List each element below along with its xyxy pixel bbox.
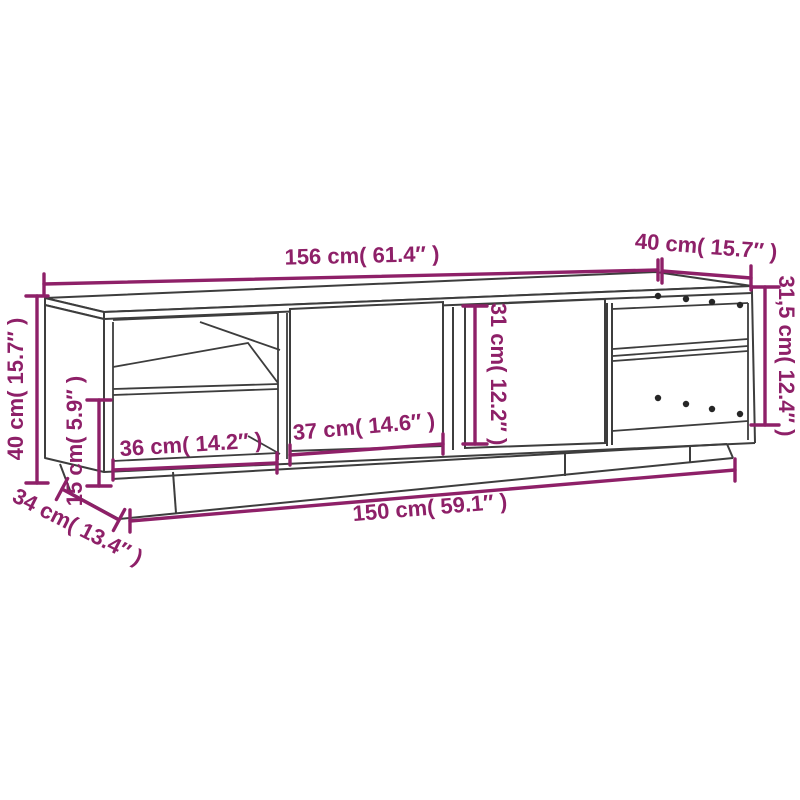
right-compartment bbox=[612, 303, 748, 440]
pin-hole bbox=[737, 411, 743, 417]
dimension-diagram-page: 156 cm( 61.4″ ) 40 cm( 15.7″ ) 31,5 cm( … bbox=[0, 0, 800, 800]
dim-label-height-left: 40 cm( 15.7″ ) bbox=[3, 318, 28, 461]
plinth-foot-seam-left bbox=[173, 472, 176, 513]
dim-height-right: 31,5 cm( 12.4″ ) bbox=[751, 276, 799, 437]
pin-hole bbox=[683, 401, 689, 407]
dim-label-door-height: 31 cm( 12.2″ ) bbox=[486, 303, 511, 446]
dim-label-depth-top: 40 cm( 15.7″ ) bbox=[634, 228, 778, 264]
dim-height-left: 40 cm( 15.7″ ) bbox=[3, 296, 48, 483]
dim-tick bbox=[113, 510, 124, 531]
cabinet-drawing bbox=[45, 272, 755, 519]
pin-hole bbox=[709, 406, 715, 412]
left-shelf-front-edge bbox=[113, 384, 278, 389]
left-compartment-back-corner bbox=[200, 322, 280, 350]
dim-label-height-right: 31,5 cm( 12.4″ ) bbox=[774, 276, 799, 437]
right-door bbox=[465, 299, 605, 448]
right-compartment-top-edge bbox=[612, 303, 748, 309]
pin-hole bbox=[737, 302, 743, 308]
plinth-right-corner bbox=[727, 444, 733, 458]
right-shelf-thickness bbox=[613, 351, 748, 361]
dim-label-plinth-height: 15 cm( 5.9″ ) bbox=[62, 376, 87, 506]
dim-label-shelf-width: 36 cm( 14.2″ ) bbox=[119, 427, 263, 461]
cabinet-right-front-edge bbox=[752, 293, 755, 443]
left-shelf-top-surface bbox=[113, 343, 278, 383]
pin-hole bbox=[655, 395, 661, 401]
pin-hole bbox=[709, 299, 715, 305]
dim-line-shelf-width bbox=[113, 463, 277, 470]
left-shelf-thickness bbox=[113, 389, 278, 395]
dim-width-bottom: 150 cm( 59.1″ ) bbox=[130, 459, 735, 532]
right-compartment-bottom-edge bbox=[612, 421, 748, 431]
dimension-diagram-svg: 156 cm( 61.4″ ) 40 cm( 15.7″ ) 31,5 cm( … bbox=[0, 0, 800, 800]
pin-hole bbox=[655, 293, 661, 299]
pin-hole bbox=[683, 296, 689, 302]
dim-label-width-top: 156 cm( 61.4″ ) bbox=[284, 241, 439, 270]
